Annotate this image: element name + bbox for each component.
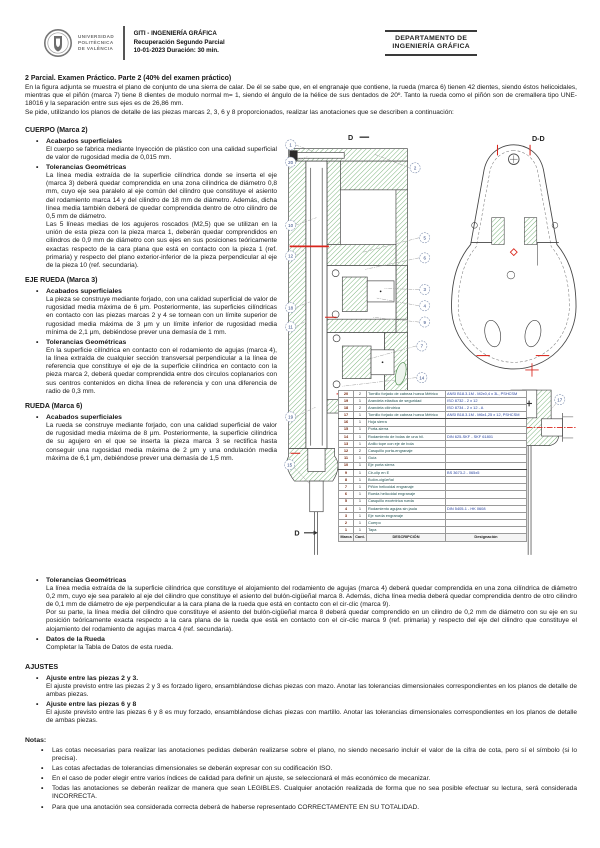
balloon: 19 — [286, 411, 296, 421]
top-screw-shaft — [296, 152, 344, 158]
balloon: 3 — [420, 284, 430, 294]
bullet-cuerpo-acabados: • Acabados superficiales El cuerpo se fa… — [36, 138, 277, 162]
parts-table-cell: ISO 8732 - 2 x 12 — [446, 397, 527, 404]
parts-table-cell: Casquillo excéntrica rueda — [367, 498, 446, 505]
parts-table-row: 81Bulón-cigüeñal — [339, 476, 527, 483]
balloon: 17 — [555, 394, 565, 404]
university-name: UNIVERSIDAD POLITÈCNICA DE VALÈNCIA — [78, 34, 114, 51]
parts-table-cell: 1 — [354, 455, 367, 462]
parts-table-cell — [446, 512, 527, 519]
parts-table-cell: Rueda helicoidal engranaje — [367, 491, 446, 498]
parts-table-cell: ISO 8734 - 2 x 12 - A — [446, 405, 527, 412]
parts-table-cell — [446, 419, 527, 426]
parts-table-cell: Casquillo porta-engranaje — [367, 448, 446, 455]
parts-table-row: 202Tornillo forjado de cabeza hueca Métr… — [339, 390, 527, 397]
balloon: 7 — [417, 341, 427, 351]
parts-table-row: 11Tapa — [339, 527, 527, 534]
parts-table-cell — [446, 520, 527, 527]
piston-shaft — [306, 161, 327, 448]
section-heading-ajustes: AJUSTES — [25, 662, 577, 671]
parts-table-header-cell: DESCRIPCIÓN — [367, 534, 446, 541]
parts-table-cell — [446, 491, 527, 498]
parts-table-cell: Eje rueda engranaje — [367, 512, 446, 519]
parts-table-cell: Arandela elástica de seguridad — [367, 397, 446, 404]
bullet-rueda-tolerancias: • Tolerancias Geométricas La línea media… — [36, 577, 577, 634]
parts-table-cell: 7 — [339, 484, 354, 491]
bullet-rueda-acabados: • Acabados superficiales La rueda se con… — [36, 414, 277, 463]
parts-table-cell — [446, 462, 527, 469]
parts-table-cell: Tornillo forjado de cabeza hueca Métrico — [367, 412, 446, 419]
dd-label: D-D — [532, 135, 545, 143]
parts-table-cell: Eje porta sierra — [367, 462, 446, 469]
parts-table-cell — [446, 484, 527, 491]
svg-text:18: 18 — [288, 305, 293, 310]
section-heading-rueda: RUEDA (Marca 6) — [25, 403, 277, 410]
balloon: 1 — [286, 139, 296, 149]
svg-text:20: 20 — [288, 159, 293, 164]
svg-text:10: 10 — [288, 223, 293, 228]
document-header: UNIVERSIDAD POLITÈCNICA DE VALÈNCIA GITI… — [25, 20, 577, 66]
parts-table-cell: 17 — [339, 412, 354, 419]
parts-table-cell: 16 — [339, 419, 354, 426]
parts-table-cell: Anillo tope con eje de bola — [367, 441, 446, 448]
parts-table-header-cell: Designación — [446, 534, 527, 541]
page-title: 2 Parcial. Examen Práctico. Parte 2 (40%… — [25, 75, 577, 82]
parts-table-cell: DIN 625-SKF - SKF 61801 — [446, 433, 527, 440]
bearing-icon — [332, 269, 339, 276]
parts-table-row: 191Arandela elástica de seguridadISO 873… — [339, 397, 527, 404]
parts-table-cell: 8 — [339, 476, 354, 483]
parts-table-cell: 6 — [339, 491, 354, 498]
nota-item-4: •Todas las anotaciones se deberán realiz… — [41, 785, 577, 801]
main-content: CUERPO (Marca 2) • Acabados superficiale… — [25, 120, 577, 577]
parts-table-cell: ANSI B18.3.1M - M6x1,25 x 12, PSHCSM — [446, 412, 527, 419]
intro-paragraph-2: Se pide, utilizando los planos de detall… — [25, 109, 577, 117]
balloon: 4 — [420, 300, 430, 310]
section-label-top: D — [348, 134, 353, 142]
gear-wheel-section — [342, 277, 367, 311]
svg-text:14: 14 — [419, 375, 424, 380]
parts-table-row: 111Guía — [339, 455, 527, 462]
balloon: 2 — [410, 162, 420, 172]
bullet-eje-tolerancias: • Tolerancias Geométricas En la superfic… — [36, 339, 277, 396]
exam-name: Recuperación Segundo Parcial — [134, 39, 225, 47]
nota-item-5: •Para que una anotación sea considerada … — [41, 804, 577, 812]
intro-paragraphs: En la figura adjunta se muestra el plano… — [25, 84, 577, 117]
parts-table-row: 31Eje rueda engranaje — [339, 512, 527, 519]
parts-table-cell: 1 — [354, 505, 367, 512]
dd-view: D-D — [452, 135, 577, 377]
balloon: 10 — [286, 220, 296, 230]
balloon: 12 — [286, 251, 296, 261]
parts-table-cell: 15 — [339, 426, 354, 433]
parts-table-row: 122Casquillo porta-engranaje — [339, 448, 527, 455]
parts-table-cell: DIN 5405-1 - HK 0608 — [446, 505, 527, 512]
parts-table-cell: Hoja sierra — [367, 419, 446, 426]
parts-table-row: 91Cir-clip en EBS 3673-2 - 065x5 — [339, 469, 527, 476]
svg-text:11: 11 — [288, 324, 293, 329]
parts-table-cell: 1 — [354, 520, 367, 527]
parts-table-cell: 1 — [354, 441, 367, 448]
parts-table-cell: 13 — [339, 441, 354, 448]
svg-text:15: 15 — [287, 462, 292, 467]
parts-table-cell — [446, 426, 527, 433]
university-logo: UNIVERSIDAD POLITÈCNICA DE VALÈNCIA — [43, 28, 114, 58]
bullet-ajuste-6-8: • Ajuste entre las piezas 6 y 8 El ajust… — [36, 701, 577, 725]
parts-table-header-cell: Marca — [339, 534, 354, 541]
parts-table-cell: ANSI B18.3.1M - M2x0,4 x 3L, PSHCSM — [446, 390, 527, 397]
header-divider — [123, 26, 125, 60]
parts-table-cell: 2 — [354, 390, 367, 397]
parts-table-cell — [446, 441, 527, 448]
assembly-drawing: D — [281, 120, 577, 577]
parts-table-row: 21Cuerpo — [339, 520, 527, 527]
parts-table-cell: 1 — [354, 512, 367, 519]
parts-table-cell: 1 — [354, 476, 367, 483]
parts-table-cell: Rodamiento de bolas de una hil. — [367, 433, 446, 440]
balloon: 18 — [286, 302, 296, 312]
section-heading-notas: Notas: — [25, 737, 577, 744]
left-text-column: CUERPO (Marca 2) • Acabados superficiale… — [25, 120, 277, 577]
parts-table-cell: 1 — [354, 469, 367, 476]
section-heading-eje: EJE RUEDA (Marca 3) — [25, 277, 277, 284]
parts-table-cell: Rodamiento agujas sin jaula — [367, 505, 446, 512]
parts-table-cell — [446, 476, 527, 483]
nota-item-2: •Las cotas afectadas de tolerancias dime… — [41, 765, 577, 773]
parts-table-cell: Cuerpo — [367, 520, 446, 527]
balloon: 11 — [286, 321, 296, 331]
svg-text:19: 19 — [288, 414, 293, 419]
balloon: 5 — [420, 232, 430, 242]
parts-table-row: 61Rueda helicoidal engranaje — [339, 491, 527, 498]
parts-table-row: 182Arandela cilíndricaISO 8734 - 2 x 12 … — [339, 405, 527, 412]
svg-text:12: 12 — [288, 253, 293, 258]
balloon: 6 — [420, 252, 430, 262]
upv-shield-icon — [43, 28, 73, 58]
parts-table-cell: 1 — [354, 419, 367, 426]
exam-date-duration: 10-01-2023 Duración: 30 min. — [134, 47, 225, 55]
parts-table-header-cell: Cant. — [354, 534, 367, 541]
department-box: DEPARTAMENTO DE INGENIERÍA GRÁFICA — [385, 30, 477, 56]
nota-item-3: •En el caso de poder elegir entre varios… — [41, 775, 577, 783]
parts-table-cell: Tapa — [367, 527, 446, 534]
blade-holder — [310, 481, 323, 512]
parts-table-cell: BS 3673-2 - 065x5 — [446, 469, 527, 476]
parts-table-cell: Bulón-cigüeñal — [367, 476, 446, 483]
bearing-icon — [333, 381, 340, 388]
parts-table-cell: 1 — [354, 397, 367, 404]
parts-table-cell: 1 — [354, 498, 367, 505]
parts-table-cell: 1 — [354, 462, 367, 469]
parts-table-cell: 10 — [339, 462, 354, 469]
parts-table-cell: Cir-clip en E — [367, 469, 446, 476]
parts-table-cell: 3 — [339, 512, 354, 519]
parts-table-row: 131Anillo tope con eje de bola — [339, 441, 527, 448]
parts-table-cell — [446, 448, 527, 455]
parts-table-row: 41Rodamiento agujas sin jaulaDIN 5405-1 … — [339, 505, 527, 512]
section-label-bottom: D — [294, 529, 299, 537]
parts-table-cell: 1 — [354, 491, 367, 498]
parts-table-cell: 20 — [339, 390, 354, 397]
parts-table-cell — [446, 527, 527, 534]
balloon: 20 — [286, 157, 296, 167]
parts-table-cell: 5 — [339, 498, 354, 505]
svg-text:17: 17 — [557, 397, 562, 402]
parts-table-cell: Tornillo forjado de cabeza hueca Métrico — [367, 390, 446, 397]
parts-table-cell: 9 — [339, 469, 354, 476]
parts-table-row: 51Casquillo excéntrica rueda — [339, 498, 527, 505]
parts-table-cell: 1 — [354, 426, 367, 433]
course-info: GITI - INGENIERÍA GRÁFICA Recuperación S… — [134, 30, 225, 55]
section-heading-cuerpo: CUERPO (Marca 2) — [25, 127, 277, 134]
parts-table-cell: 18 — [339, 405, 354, 412]
parts-table-cell: 1 — [354, 412, 367, 419]
parts-table-cell: 1 — [354, 484, 367, 491]
bullet-rueda-datos: • Datos de la Rueda Completar la Tabla d… — [36, 636, 577, 652]
parts-table-header-row: MarcaCant.DESCRIPCIÓNDesignación — [339, 534, 527, 541]
exam-document-page: UNIVERSIDAD POLITÈCNICA DE VALÈNCIA GITI… — [0, 0, 600, 848]
nota-item-1: •Las cotas necesarias para realizar las … — [41, 747, 577, 763]
balloon: 9 — [420, 317, 430, 327]
parts-table-cell: Porta-sierra — [367, 426, 446, 433]
parts-table-cell: 2 — [339, 520, 354, 527]
intro-paragraph-1: En la figura adjunta se muestra el plano… — [25, 84, 577, 109]
balloon: 14 — [417, 372, 427, 382]
parts-table-cell: 14 — [339, 433, 354, 440]
parts-table-cell: 1 — [354, 527, 367, 534]
parts-table-cell: Piñón helicoidal engranaje — [367, 484, 446, 491]
parts-table-row: 71Piñón helicoidal engranaje — [339, 484, 527, 491]
parts-table-cell: 1 — [339, 527, 354, 534]
bearing-icon — [333, 335, 340, 342]
parts-table-row: 161Hoja sierra — [339, 419, 527, 426]
bullet-ajuste-2-3: • Ajuste entre las piezas 2 y 3. El ajus… — [36, 675, 577, 699]
red-annotation-marks-dd — [476, 145, 549, 377]
parts-table-cell: 11 — [339, 455, 354, 462]
parts-table-cell — [446, 498, 527, 505]
parts-table-cell — [446, 455, 527, 462]
parts-table-cell: Arandela cilíndrica — [367, 405, 446, 412]
parts-table-row: 171Tornillo forjado de cabeza hueca Métr… — [339, 412, 527, 419]
parts-list-table: 202Tornillo forjado de cabeza hueca Métr… — [338, 390, 527, 542]
parts-table-cell: 12 — [339, 448, 354, 455]
parts-table-cell: 2 — [354, 448, 367, 455]
parts-table-row: 141Rodamiento de bolas de una hil.DIN 62… — [339, 433, 527, 440]
bullet-cuerpo-tolerancias: • Tolerancias Geométricas La línea media… — [36, 164, 277, 270]
crank-section — [342, 346, 371, 379]
parts-table-cell: 1 — [354, 433, 367, 440]
parts-table-cell: 2 — [354, 405, 367, 412]
parts-table-cell: 4 — [339, 505, 354, 512]
parts-table-cell: 19 — [339, 397, 354, 404]
parts-table-row: 151Porta-sierra — [339, 426, 527, 433]
balloon: 15 — [285, 459, 295, 469]
rueda-tolerancias-fullwidth: • Tolerancias Geométricas La línea media… — [25, 577, 577, 652]
parts-table-cell: Guía — [367, 455, 446, 462]
course-title: GITI - INGENIERÍA GRÁFICA — [134, 30, 225, 38]
parts-table-row: 101Eje porta sierra — [339, 462, 527, 469]
bullet-eje-acabados: • Acabados superficiales La pieza se con… — [36, 288, 277, 337]
